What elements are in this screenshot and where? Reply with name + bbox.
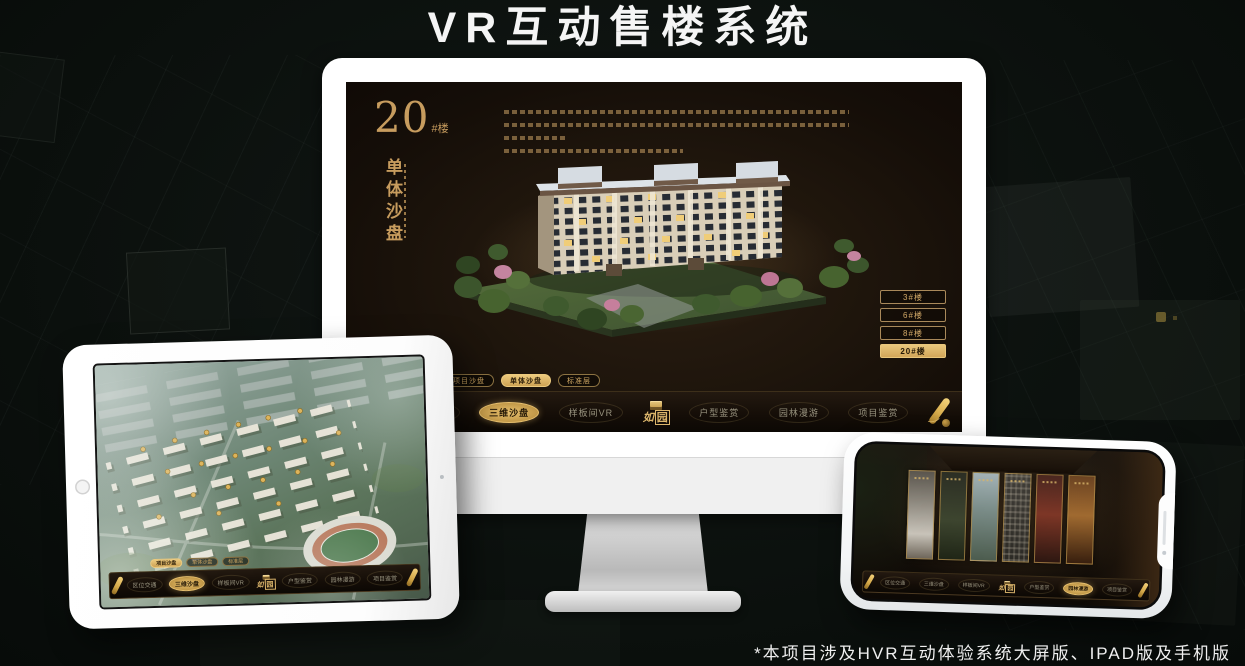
monitor-sub-tabs: 项目沙盘 单体沙盘 标准层 (444, 374, 600, 387)
scene-card[interactable] (970, 472, 1000, 562)
page-title: VR互动售楼系统 (0, 0, 1245, 56)
brand-logo: 如园 (256, 575, 275, 589)
nav-item-showroom-vr[interactable]: 样板间VR (559, 402, 624, 423)
camera-icon (1162, 550, 1166, 554)
monitor-stand-base (545, 591, 741, 612)
nav-item-garden-tour-selected[interactable]: 园林漫游 (1063, 581, 1093, 595)
background-sign-frame (126, 247, 230, 334)
home-button[interactable] (75, 479, 90, 494)
description-line (504, 110, 849, 114)
phone-device: 区位交通 三维沙盘 样板间VR 如园 户型鉴赏 园林漫游 项目鉴赏 (839, 432, 1176, 619)
nav-item-project-gallery[interactable]: 项目鉴赏 (1102, 582, 1132, 596)
block-number-suffix: #楼 (431, 123, 448, 135)
speaker-icon (1162, 510, 1166, 544)
block-number: 20 (374, 93, 429, 142)
camera-icon (440, 475, 444, 479)
scene-card[interactable] (1034, 474, 1064, 564)
background-brand-mark (1156, 312, 1166, 322)
nav-item-unit-plans[interactable]: 户型鉴赏 (1024, 580, 1054, 594)
background-photo-patch (981, 177, 1140, 317)
floor-button-3[interactable]: 3#楼 (880, 290, 946, 304)
nav-item-project-gallery[interactable]: 项目鉴赏 (367, 570, 403, 586)
seal-icon (650, 401, 662, 410)
scroll-icon[interactable] (1137, 582, 1148, 598)
nav-item-location[interactable]: 区位交通 (880, 576, 910, 590)
scene-card[interactable] (1066, 475, 1096, 565)
tab-single-sandbox[interactable]: 单体沙盘 (186, 557, 218, 567)
phone-screen: 区位交通 三维沙盘 样板间VR 如园 户型鉴赏 园林漫游 项目鉴赏 (853, 443, 1164, 608)
building-3d-render (406, 138, 896, 388)
nav-item-garden-tour[interactable]: 园林漫游 (324, 571, 360, 587)
brand-logo: 如园 (998, 580, 1015, 592)
scene-card[interactable] (1002, 473, 1032, 563)
tablet-screen: 项目沙盘 单体沙盘 标准层 区位交通 三维沙盘 样板间VR 如园 户型鉴赏 园林… (95, 356, 430, 607)
nav-item-3d-sandbox-selected[interactable]: 三维沙盘 (479, 402, 539, 423)
floor-button-6[interactable]: 6#楼 (880, 308, 946, 322)
nav-item-location[interactable]: 区位交通 (126, 577, 162, 593)
tab-single-sandbox-selected[interactable]: 单体沙盘 (501, 374, 551, 387)
nav-item-unit-plans[interactable]: 户型鉴赏 (689, 402, 749, 423)
phone-notch (1157, 492, 1175, 568)
nav-item-unit-plans[interactable]: 户型鉴赏 (282, 572, 318, 588)
nav-item-showroom-vr[interactable]: 样板间VR (958, 578, 990, 592)
floor-button-20-selected[interactable]: 20#楼 (880, 344, 946, 358)
floor-button-group: 3#楼 6#楼 8#楼 20#楼 (880, 290, 946, 358)
nav-item-3d-sandbox-selected[interactable]: 三维沙盘 (169, 576, 205, 592)
floor-button-8[interactable]: 8#楼 (880, 326, 946, 340)
monitor-stand-neck (578, 514, 708, 594)
block-headline: 20#楼 (374, 96, 449, 140)
scene-card-gallery (906, 470, 1096, 565)
nav-item-project-gallery[interactable]: 项目鉴赏 (848, 402, 908, 423)
scroll-icon[interactable] (111, 576, 124, 595)
footnote-text: *本项目涉及HVR互动体验系统大屏版、IPAD版及手机版 (754, 639, 1231, 664)
tab-standard-floor[interactable]: 标准层 (558, 374, 600, 387)
description-line (504, 123, 849, 127)
poster-canvas: VR互动售楼系统 20#楼 单体沙盘 (0, 0, 1245, 666)
scroll-icon[interactable] (863, 574, 874, 590)
background-sign-frame (0, 51, 65, 143)
brand-logo: 如园 (643, 401, 670, 423)
tab-project-sandbox-selected[interactable]: 项目沙盘 (150, 558, 182, 568)
nav-item-garden-tour[interactable]: 园林漫游 (769, 402, 829, 423)
scene-card[interactable] (938, 471, 968, 561)
nav-item-showroom-vr[interactable]: 样板间VR (211, 574, 250, 590)
block-subtitle-vertical: 单体沙盘 (380, 158, 405, 278)
scene-card[interactable] (906, 470, 936, 560)
nav-item-3d-sandbox[interactable]: 三维沙盘 (919, 577, 949, 591)
scroll-icon[interactable] (406, 568, 419, 587)
scroll-icon[interactable] (928, 397, 952, 427)
tablet-device: 项目沙盘 单体沙盘 标准层 区位交通 三维沙盘 样板间VR 如园 户型鉴赏 园林… (62, 335, 460, 630)
tab-standard-floor[interactable]: 标准层 (222, 556, 249, 566)
